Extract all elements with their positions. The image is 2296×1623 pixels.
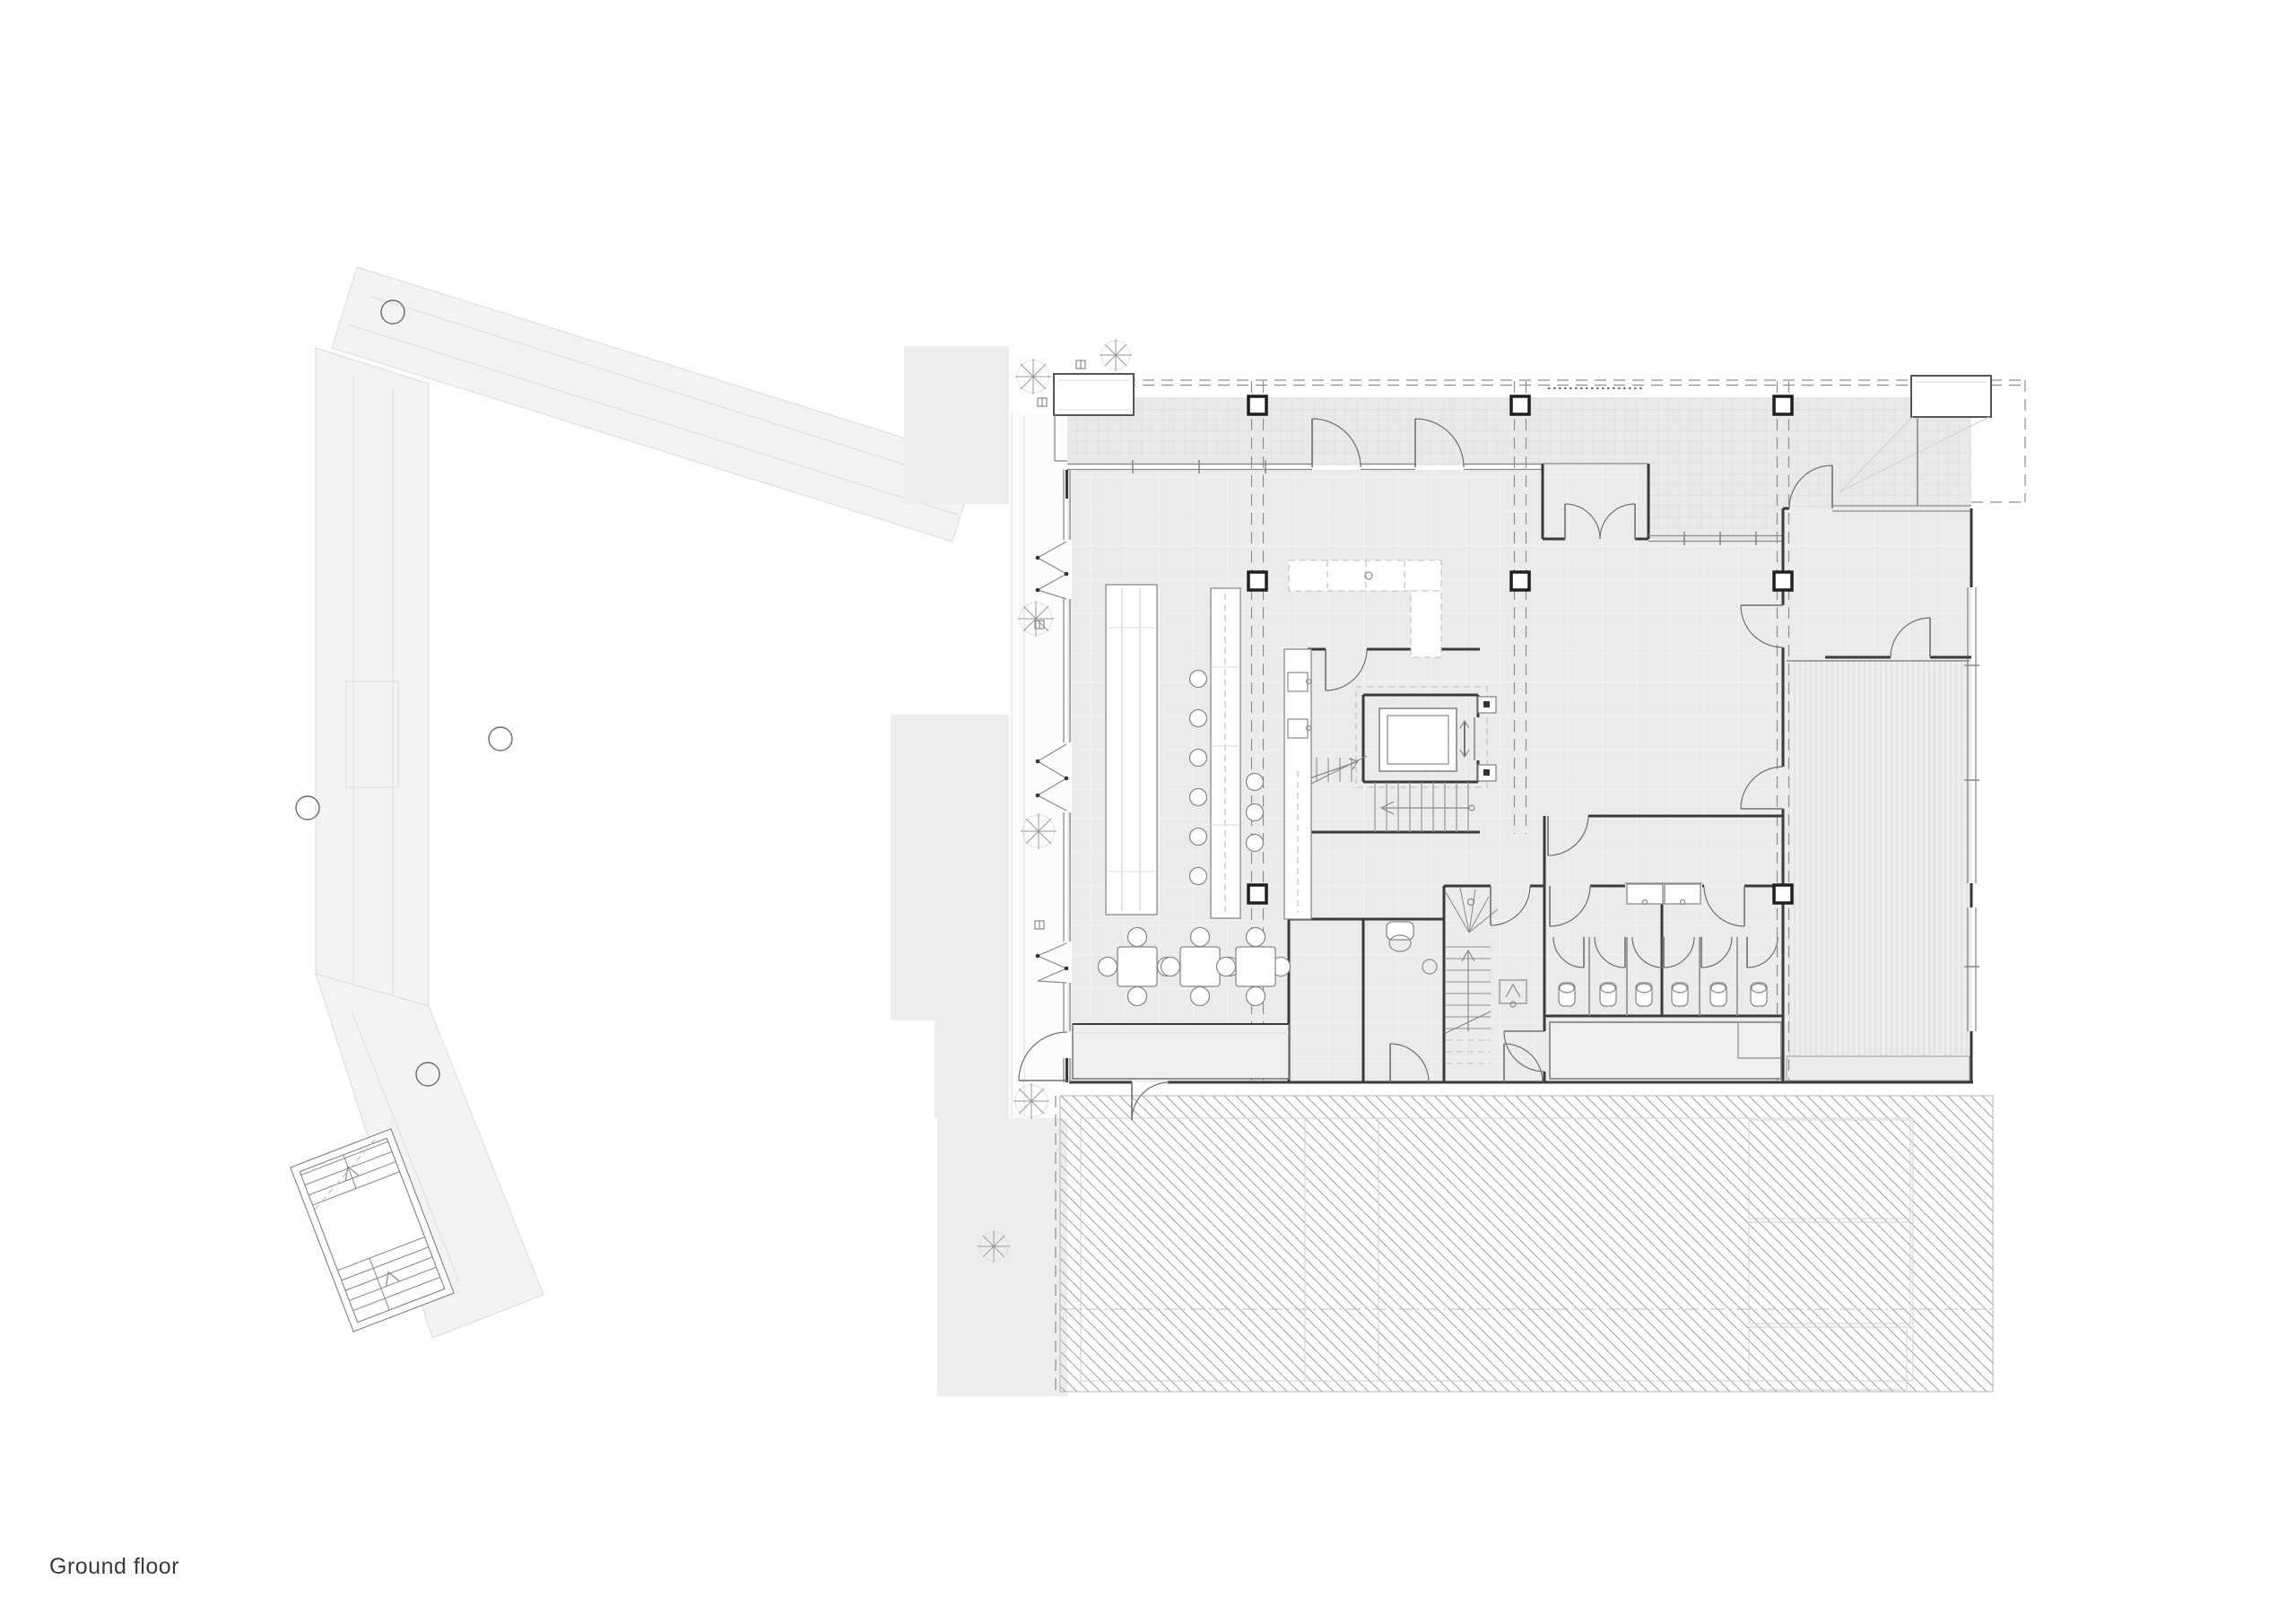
context-building (291, 267, 978, 1338)
column (1774, 885, 1792, 903)
bench-strip (1073, 1024, 1289, 1079)
tree-symbol (1018, 601, 1054, 637)
column (1248, 396, 1266, 414)
floor-plan-page: Ground floor (0, 0, 2296, 1623)
column (1774, 396, 1792, 414)
tree-symbol (1021, 813, 1057, 849)
column (1511, 396, 1529, 414)
sink-counter (1284, 649, 1311, 919)
tree-symbol (1100, 339, 1132, 371)
survey-circle (489, 727, 512, 751)
ground-floor-plan-drawing (0, 0, 2296, 1623)
hatched-basement-zone (1056, 1096, 1993, 1392)
column (1248, 572, 1266, 590)
column (1511, 572, 1529, 590)
floor-label: Ground floor (49, 1554, 179, 1580)
tree-symbol (1015, 359, 1051, 395)
column (1248, 885, 1266, 903)
column (1774, 572, 1792, 590)
decking-zone (1787, 661, 1970, 1081)
shelf-unit (1106, 585, 1157, 915)
sidewalk-and-surroundings (891, 346, 1067, 1396)
tree-symbol (1013, 1083, 1049, 1119)
